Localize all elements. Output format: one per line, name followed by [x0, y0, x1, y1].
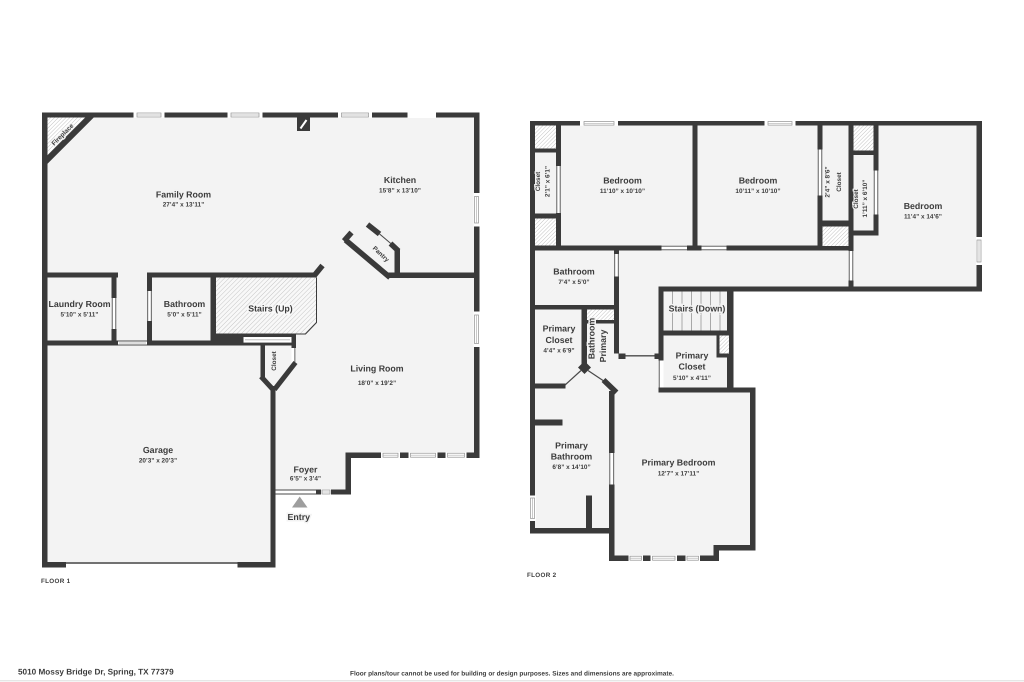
svg-text:Closet: Closet: [836, 171, 843, 191]
svg-text:Primary: Primary: [555, 441, 588, 451]
svg-text:12’7” x 17’11”: 12’7” x 17’11”: [658, 471, 700, 478]
svg-text:Closet: Closet: [679, 362, 706, 372]
svg-text:20’3” x 20’3”: 20’3” x 20’3”: [139, 458, 177, 465]
svg-text:Bathroom: Bathroom: [164, 299, 206, 309]
svg-text:Bedroom: Bedroom: [904, 201, 943, 211]
svg-text:Bedroom: Bedroom: [739, 176, 778, 186]
svg-text:Entry: Entry: [288, 512, 311, 522]
svg-text:Kitchen: Kitchen: [384, 175, 416, 185]
svg-text:5’10” x 5’11”: 5’10” x 5’11”: [60, 311, 98, 318]
svg-text:Bathroom: Bathroom: [551, 452, 593, 462]
svg-text:15’8” x 13’10”: 15’8” x 13’10”: [379, 188, 421, 195]
svg-text:4’4” x 6’9”: 4’4” x 6’9”: [543, 348, 574, 355]
svg-text:Primary: Primary: [676, 351, 709, 361]
svg-text:Closet: Closet: [546, 335, 573, 345]
svg-text:Floor plans/tour cannot be use: Floor plans/tour cannot be used for buil…: [350, 671, 674, 678]
svg-text:Foyer: Foyer: [294, 465, 319, 475]
svg-text:10’11” x 10’10”: 10’11” x 10’10”: [735, 188, 780, 195]
svg-text:2’1” x 6’1”: 2’1” x 6’1”: [545, 166, 552, 197]
svg-text:Stairs (Down): Stairs (Down): [669, 304, 726, 314]
svg-text:7’4” x 5’0”: 7’4” x 5’0”: [558, 279, 589, 286]
svg-text:Family Room: Family Room: [156, 190, 211, 200]
svg-text:Primary: Primary: [543, 324, 576, 334]
svg-text:Living Room: Living Room: [350, 364, 403, 374]
svg-text:27’4” x 13’11”: 27’4” x 13’11”: [163, 202, 205, 209]
svg-text:Garage: Garage: [143, 445, 173, 455]
svg-text:Primary: Primary: [598, 330, 608, 363]
svg-text:5’10” x 4’11”: 5’10” x 4’11”: [673, 375, 711, 382]
svg-text:11’4” x 14’6”: 11’4” x 14’6”: [904, 214, 942, 221]
svg-text:6’5” x 3’4”: 6’5” x 3’4”: [290, 476, 321, 483]
svg-text:Closet: Closet: [271, 350, 278, 370]
svg-text:Closet: Closet: [853, 188, 860, 208]
svg-text:2’4” x 8’6”: 2’4” x 8’6”: [825, 166, 832, 197]
svg-text:FLOOR 1: FLOOR 1: [41, 578, 71, 585]
svg-text:FLOOR 2: FLOOR 2: [527, 572, 557, 579]
svg-text:5010 Mossy Bridge Dr, Spring,: 5010 Mossy Bridge Dr, Spring, TX 77379: [18, 668, 174, 677]
svg-text:Bathroom: Bathroom: [586, 318, 596, 360]
svg-text:11’10” x 10’10”: 11’10” x 10’10”: [600, 188, 645, 195]
svg-text:5’0” x 5’11”: 5’0” x 5’11”: [167, 311, 201, 318]
svg-text:Stairs (Up): Stairs (Up): [248, 304, 293, 314]
svg-text:Bedroom: Bedroom: [603, 176, 642, 186]
svg-text:Bathroom: Bathroom: [553, 267, 595, 277]
svg-text:Primary Bedroom: Primary Bedroom: [642, 458, 716, 468]
svg-text:6’8” x 14’10”: 6’8” x 14’10”: [552, 464, 590, 471]
svg-text:Closet: Closet: [535, 171, 542, 191]
svg-text:Laundry Room: Laundry Room: [48, 299, 110, 309]
svg-text:18’0” x 19’2”: 18’0” x 19’2”: [358, 380, 396, 387]
svg-text:1’11” x 6’10”: 1’11” x 6’10”: [862, 179, 869, 217]
